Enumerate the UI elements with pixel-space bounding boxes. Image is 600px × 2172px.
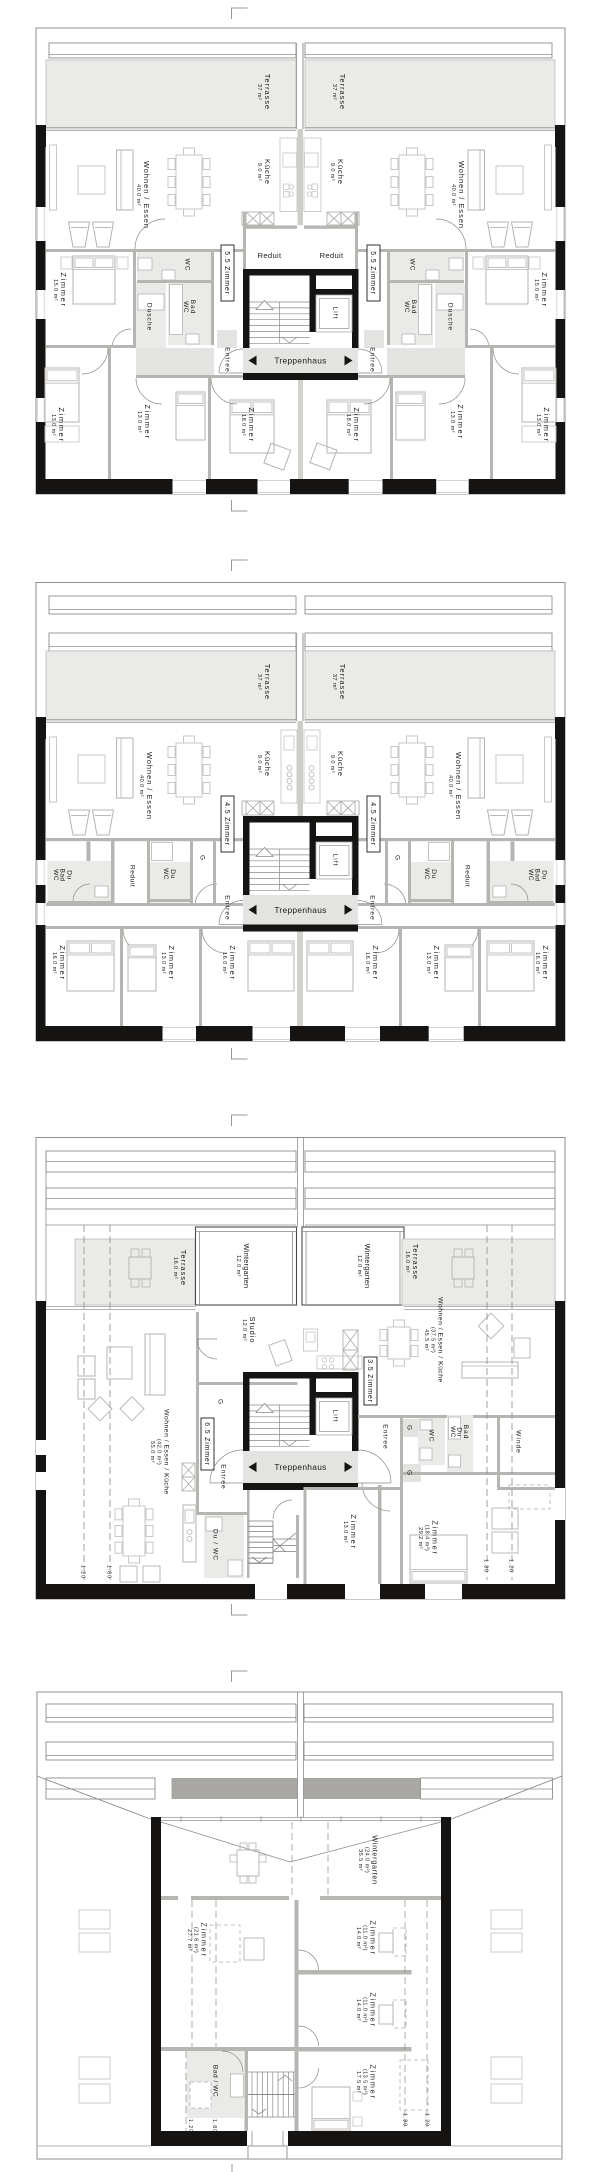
svg-text:1.20: 1.20 <box>508 1559 514 1573</box>
svg-text:Treppenhaus: Treppenhaus <box>274 905 326 915</box>
svg-text:3.5 Zimmer: 3.5 Zimmer <box>366 1359 373 1402</box>
svg-text:1.80: 1.80 <box>402 2113 408 2127</box>
svg-text:WC: WC <box>184 259 191 272</box>
svg-text:1.80: 1.80 <box>211 2119 217 2133</box>
svg-text:Lift: Lift <box>332 307 339 320</box>
svg-text:G: G <box>199 855 206 861</box>
svg-text:Dusche: Dusche <box>146 303 153 331</box>
svg-text:DuBadWC: DuBadWC <box>527 869 548 882</box>
svg-text:Küche9.0 m²: Küche9.0 m² <box>256 159 272 185</box>
svg-text:G: G <box>406 1425 413 1431</box>
svg-text:Entree: Entree <box>224 895 231 920</box>
svg-text:Lift: Lift <box>332 854 339 867</box>
svg-text:G: G <box>406 1470 413 1476</box>
svg-text:Treppenhaus: Treppenhaus <box>274 1462 326 1472</box>
svg-text:DuWC: DuWC <box>423 868 437 880</box>
svg-text:4.5 Zimmer: 4.5 Zimmer <box>223 802 230 845</box>
svg-text:Entree: Entree <box>369 895 376 920</box>
svg-text:Studio12.0 m²: Studio12.0 m² <box>241 1317 257 1344</box>
svg-text:1.80: 1.80 <box>106 1565 112 1579</box>
svg-text:BadWC: BadWC <box>403 300 417 315</box>
svg-text:1.20: 1.20 <box>187 2119 193 2133</box>
svg-text:5.5 Zimmer: 5.5 Zimmer <box>369 251 376 294</box>
svg-text:DuBadWC: DuBadWC <box>52 869 73 882</box>
svg-text:Lift: Lift <box>332 1410 339 1423</box>
svg-text:1.20: 1.20 <box>80 1565 86 1579</box>
svg-text:WC: WC <box>409 259 416 272</box>
svg-text:BadWC: BadWC <box>182 300 196 315</box>
svg-text:Reduit: Reduit <box>320 251 344 260</box>
svg-text:DuWC: DuWC <box>162 868 176 880</box>
svg-text:Entree: Entree <box>224 347 231 372</box>
svg-text:G: G <box>217 1399 224 1405</box>
svg-text:Entree: Entree <box>382 1424 389 1449</box>
svg-text:6.5 Zimmer: 6.5 Zimmer <box>203 1422 210 1465</box>
svg-text:Entree: Entree <box>369 347 376 372</box>
svg-text:1.20: 1.20 <box>424 2113 430 2127</box>
svg-text:Reduit: Reduit <box>129 865 136 887</box>
svg-text:Du / WC: Du / WC <box>212 1529 219 1561</box>
svg-text:Küche9.0 m²: Küche9.0 m² <box>256 751 272 777</box>
svg-text:Entree: Entree <box>220 1464 227 1489</box>
svg-text:G: G <box>394 855 401 861</box>
svg-text:Reduit: Reduit <box>258 251 282 260</box>
svg-text:4.5 Zimmer: 4.5 Zimmer <box>369 802 376 845</box>
svg-text:Winde: Winde <box>515 1430 522 1454</box>
svg-text:Bad / WC: Bad / WC <box>212 2065 219 2097</box>
svg-text:WC: WC <box>428 1430 435 1443</box>
svg-text:Treppenhaus: Treppenhaus <box>274 356 326 366</box>
svg-text:Dusche: Dusche <box>447 303 454 331</box>
svg-text:1.80: 1.80 <box>483 1559 489 1573</box>
svg-text:5.5 Zimmer: 5.5 Zimmer <box>223 251 230 294</box>
svg-text:Küche9.0 m²: Küche9.0 m² <box>329 159 345 185</box>
svg-text:Küche9.0 m²: Küche9.0 m² <box>329 751 345 777</box>
svg-text:Reduit: Reduit <box>464 865 471 887</box>
